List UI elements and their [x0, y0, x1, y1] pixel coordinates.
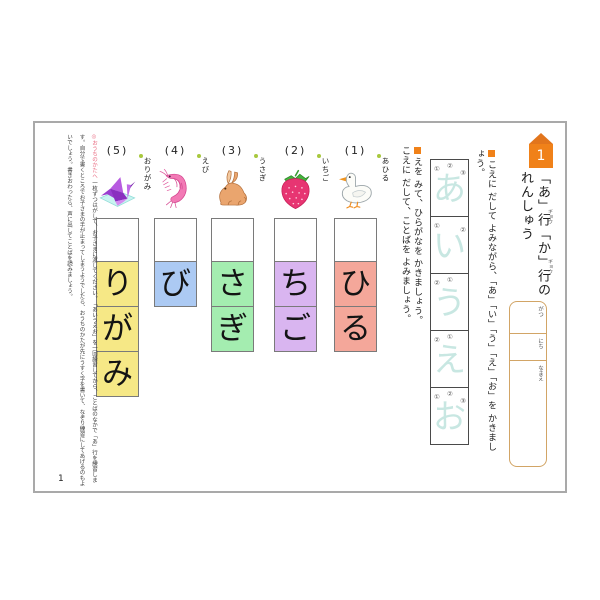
letter-box: る [334, 306, 377, 352]
letter-box: み [96, 351, 139, 397]
word-column-origami: (5) おりがみ り が み [96, 144, 139, 397]
trace-box-i[interactable]: ① ② い [430, 216, 469, 274]
word-column-ahiru: (1) あひる ひ る [334, 144, 377, 352]
word-label: いちご [321, 157, 330, 183]
stroke-order-mark: ① [434, 222, 440, 230]
writing-box-empty[interactable] [96, 218, 139, 262]
parent-note: ◎おうちのかたへ 一枚ずつはがして、お子さまに渡してください。「あいうえお」を一… [58, 134, 100, 486]
stroke-order-mark: ② [434, 279, 440, 287]
trace-character: う [433, 286, 466, 319]
accent-dot-icon [139, 154, 143, 158]
letter-box: さ [211, 261, 254, 307]
word-label: おりがみ [143, 157, 152, 191]
letter-box: び [154, 261, 197, 307]
writing-box-empty[interactable] [274, 218, 317, 262]
column-number: (4) [154, 144, 197, 157]
parent-note-heading: ◎おうちのかたへ [91, 134, 97, 179]
square-bullet-icon [488, 150, 495, 157]
column-number: (1) [334, 144, 377, 157]
stroke-order-mark: ② [434, 336, 440, 344]
letter-box: ひ [334, 261, 377, 307]
month-field[interactable]: がつ [510, 302, 546, 334]
lesson-number: 1 [529, 144, 553, 168]
strawberry-illustration [274, 157, 317, 219]
accent-dot-icon [317, 154, 321, 158]
title-furigana: ギョウ [547, 259, 552, 274]
stroke-order-mark: ③ [460, 169, 466, 177]
letter-box: ご [274, 306, 317, 352]
date-name-box: がつ にち なまえ [509, 301, 547, 467]
write-instruction-line: えを みて、ひらがなを かきましょう。 [411, 146, 423, 396]
writing-box-empty[interactable] [334, 218, 377, 262]
writing-box-empty[interactable] [154, 218, 197, 262]
trace-character: え [433, 343, 466, 376]
shrimp-illustration [154, 157, 197, 219]
writing-box-empty[interactable] [211, 218, 254, 262]
letter-box: り [96, 261, 139, 307]
trace-box-a[interactable]: ① ② ③ あ [430, 159, 469, 217]
word-label: えび [201, 157, 210, 174]
read-instruction-line: こえに だして、ことばを よみましょう。 [399, 146, 411, 396]
stroke-order-mark: ① [447, 333, 453, 341]
word-column-usagi: (3) うさぎ さ ぎ [211, 144, 254, 352]
stroke-order-mark: ② [460, 226, 466, 234]
name-field[interactable]: なまえ [510, 361, 546, 463]
origami-crane-illustration [96, 157, 139, 219]
write-read-instruction: えを みて、ひらがなを かきましょう。 こえに だして、ことばを よみましょう。 [397, 146, 423, 396]
title-furigana: ギョウ [547, 209, 552, 224]
day-label: にち [537, 338, 543, 349]
worksheet-page: 1 「あ」行「か」行の れんしゅう ギョウ ギョウ こえに だして よみながら、… [33, 121, 567, 493]
stroke-order-mark: ① [447, 276, 453, 284]
name-label: なまえ [537, 365, 543, 382]
page-number: 1 [58, 474, 64, 484]
lesson-badge: 1 [529, 133, 553, 168]
stroke-order-mark: ② [447, 390, 453, 398]
stroke-order-mark: ① [434, 165, 440, 173]
word-column-ichigo: (2) いちご ち ご [274, 144, 317, 352]
column-number: (5) [96, 144, 139, 157]
duck-illustration [334, 157, 377, 219]
stroke-order-mark: ③ [460, 397, 466, 405]
column-number: (3) [211, 144, 254, 157]
trace-box-o[interactable]: ① ② ③ お [430, 387, 469, 445]
stroke-order-mark: ② [447, 162, 453, 170]
column-number: (2) [274, 144, 317, 157]
letter-box: ぎ [211, 306, 254, 352]
accent-dot-icon [377, 154, 381, 158]
title-line2: れんしゅう [517, 171, 534, 313]
accent-dot-icon [254, 154, 258, 158]
worksheet-title: 「あ」行「か」行の れんしゅう ギョウ ギョウ [515, 171, 551, 313]
word-label: あひる [381, 157, 390, 183]
square-bullet-icon [414, 147, 421, 154]
worksheet-scan: 1 「あ」行「か」行の れんしゅう ギョウ ギョウ こえに だして よみながら、… [0, 0, 600, 600]
day-field[interactable]: にち [510, 334, 546, 361]
trace-instruction: こえに だして よみながら、「あ」「い」「う」「え」「お」を かきましょう。 [482, 149, 497, 454]
title-line1: 「あ」行「か」行の [534, 171, 551, 313]
month-label: がつ [537, 306, 543, 317]
rabbit-illustration [211, 157, 254, 219]
parent-note-body: 一枚ずつはがして、お子さまに渡してください。「あいうえお」を一回練習してから、こ… [66, 134, 97, 486]
trace-column: ① ② ③ あ ① ② い ① ② う ① ② え ① ② [430, 160, 469, 445]
word-column-ebi: (4) えび び [154, 144, 197, 307]
pencil-tip-icon [529, 133, 553, 144]
trace-box-u[interactable]: ① ② う [430, 273, 469, 331]
trace-box-e[interactable]: ① ② え [430, 330, 469, 388]
word-label: うさぎ [258, 157, 267, 183]
stroke-order-mark: ① [434, 393, 440, 401]
letter-box: が [96, 306, 139, 352]
letter-box: ち [274, 261, 317, 307]
accent-dot-icon [197, 154, 201, 158]
